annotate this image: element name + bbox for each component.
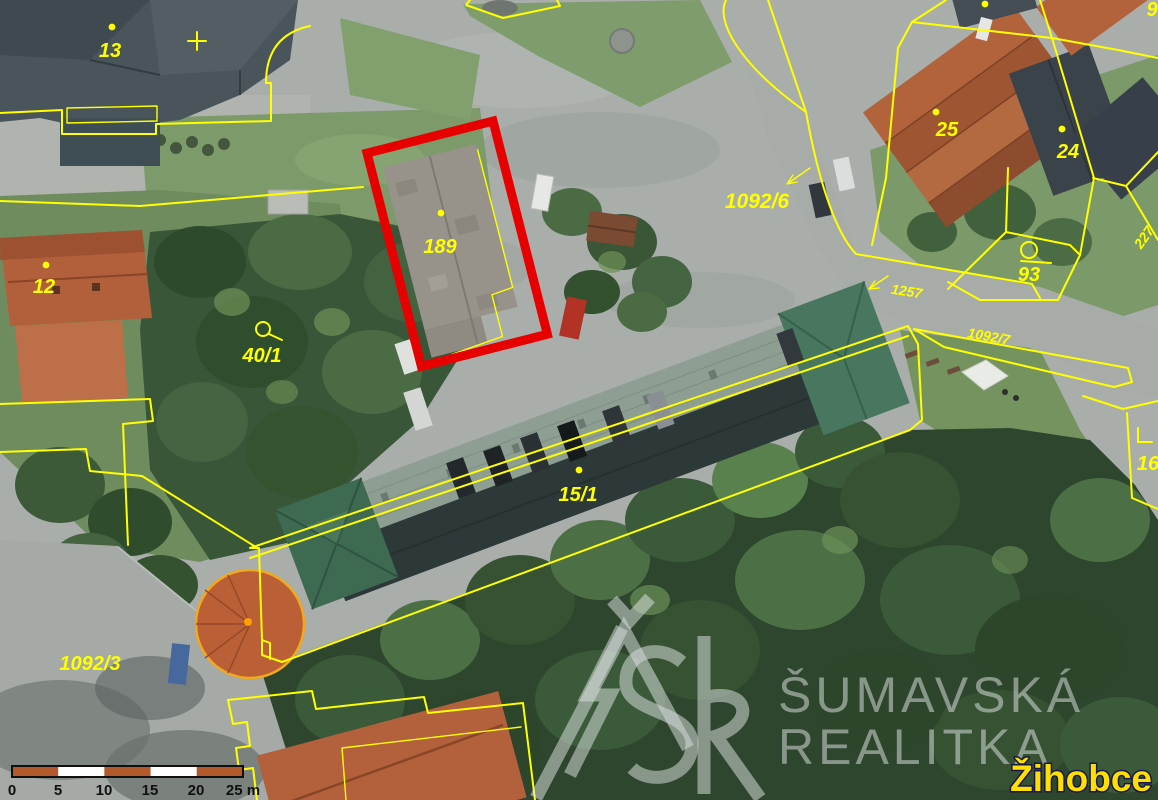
scale-tick-5: 5 [54, 782, 62, 799]
parcel-label-1092-3: 1092/3 [59, 653, 120, 675]
parcel-label-16: 16 [1137, 453, 1158, 475]
parcel-label-24: 24 [1056, 141, 1079, 163]
town-name-label: Žihobce [1010, 757, 1152, 799]
parcel-label-1092-6: 1092/6 [725, 190, 790, 213]
parcel-label-25: 25 [935, 119, 959, 141]
parcel-label-93: 93 [1018, 264, 1040, 286]
brand-name-line1: ŠUMAVSKÁ [778, 667, 1084, 723]
building-dot-orange [244, 618, 252, 626]
scale-tick-20: 20 [188, 782, 205, 799]
aerial-map-canvas: 13 12 40/1 189 1092/6 25 24 93 9 227 125… [0, 0, 1158, 800]
scale-tick-25m: 25 m [226, 782, 260, 799]
parcel-label-13: 13 [99, 40, 121, 62]
parcel-label-12: 12 [33, 276, 55, 298]
parcel-label-40-1: 40/1 [242, 345, 282, 367]
scale-tick-0: 0 [8, 782, 16, 799]
scale-tick-15: 15 [142, 782, 159, 799]
parcel-label-15-1: 15/1 [559, 484, 598, 506]
parcel-label-9: 9 [1146, 0, 1158, 21]
cadastral-map: 13 12 40/1 189 1092/6 25 24 93 9 227 125… [0, 0, 1158, 800]
pavement-stain [480, 112, 720, 188]
scale-tick-10: 10 [96, 782, 113, 799]
parcel-label-189: 189 [423, 236, 457, 258]
